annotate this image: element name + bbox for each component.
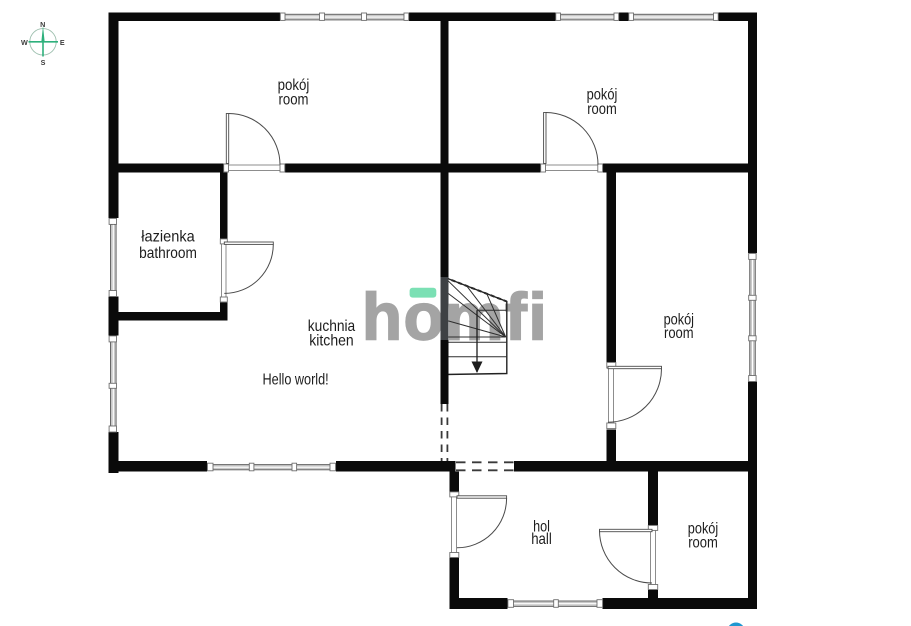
svg-text:room: room bbox=[688, 534, 718, 551]
svg-text:kitchen: kitchen bbox=[309, 333, 353, 350]
svg-text:bathroom: bathroom bbox=[139, 245, 197, 262]
svg-text:E: E bbox=[60, 38, 65, 47]
svg-text:room: room bbox=[587, 101, 617, 118]
svg-text:N: N bbox=[40, 20, 45, 29]
svg-text:Hello world!: Hello world! bbox=[263, 372, 329, 389]
svg-text:hall: hall bbox=[531, 531, 552, 548]
svg-text:room: room bbox=[664, 325, 694, 342]
svg-text:room: room bbox=[279, 92, 309, 109]
svg-text:łazienka: łazienka bbox=[141, 228, 194, 245]
svg-text:W: W bbox=[21, 38, 28, 47]
svg-text:S: S bbox=[41, 58, 46, 67]
